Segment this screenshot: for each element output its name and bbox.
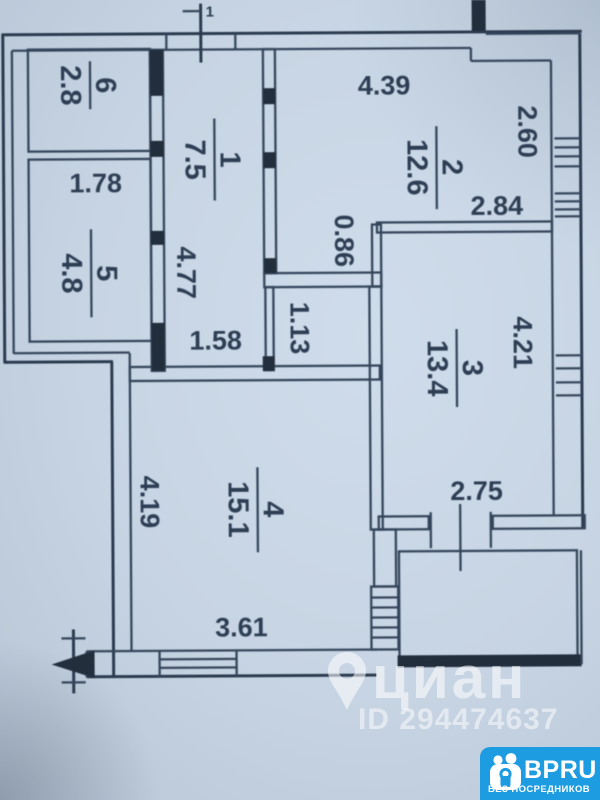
floorplan-drawing: 1 1 7.5 2 12.6 3 13.4 4 15.1: [0, 0, 600, 800]
room-number: 3: [456, 360, 488, 376]
room-area: 12.6: [400, 139, 432, 196]
dim-closet-width: 1.13: [284, 302, 314, 355]
room-number: 1: [213, 151, 245, 167]
room-area: 4.8: [55, 253, 87, 294]
badge-brand: BPRU: [524, 756, 597, 785]
room-number: 5: [90, 265, 122, 281]
room-label-6: 6 2.8: [54, 61, 121, 109]
dim-step: 0.86: [329, 214, 359, 267]
dim-room2-width: 4.39: [358, 70, 411, 100]
door-jambs: [150, 49, 277, 372]
vent-shaft-hatch-icon: [371, 586, 398, 649]
room-label-5: 5 4.8: [55, 229, 123, 317]
room-area: 13.4: [421, 340, 453, 397]
dim-room4-length: 4.19: [134, 476, 164, 529]
dim-room2-depth: 2.60: [512, 105, 542, 158]
dimension-labels: 4.39 1.78 1.58 2.84 2.75 3.61 4.77 2.60 …: [69, 70, 546, 644]
dim-hall-length: 4.77: [171, 246, 201, 299]
room-number: 4: [257, 501, 289, 517]
room-area: 7.5: [178, 139, 210, 180]
badge-tagline: БЕЗ ПОСРЕДНИКОВ: [488, 784, 590, 795]
window-room2-upper-icon: [554, 138, 580, 166]
room-label-2: 2 12.6: [400, 126, 468, 209]
room-label-1: 1 7.5: [178, 118, 245, 200]
dim-room2-inner: 2.84: [470, 191, 523, 221]
room-area: 15.1: [221, 481, 253, 538]
room-number: 6: [89, 77, 121, 93]
dim-room3-door: 2.75: [450, 476, 503, 506]
balcony: [397, 550, 582, 667]
room-area: 2.8: [54, 65, 86, 106]
section-label: 1: [206, 4, 214, 21]
room-label-4: 4 15.1: [221, 467, 289, 552]
bpru-badge: BPRU БЕЗ ПОСРЕДНИКОВ: [480, 747, 600, 800]
balcony-door-icon: [431, 504, 491, 571]
room-label-3: 3 13.4: [421, 329, 488, 407]
dim-room3-depth: 4.21: [507, 316, 537, 369]
window-room4-icon: [160, 650, 237, 676]
room-number: 2: [436, 159, 468, 175]
section-mark-bottom: [51, 629, 94, 693]
window-room3-icon: [556, 355, 582, 395]
window-room2-lower-icon: [555, 193, 581, 216]
dim-hall-width: 1.58: [189, 325, 242, 355]
floorplan-photo: 1 1 7.5 2 12.6 3 13.4 4 15.1: [0, 0, 600, 800]
dim-room4-width: 3.61: [215, 612, 268, 642]
dim-room5-width: 1.78: [69, 168, 122, 198]
